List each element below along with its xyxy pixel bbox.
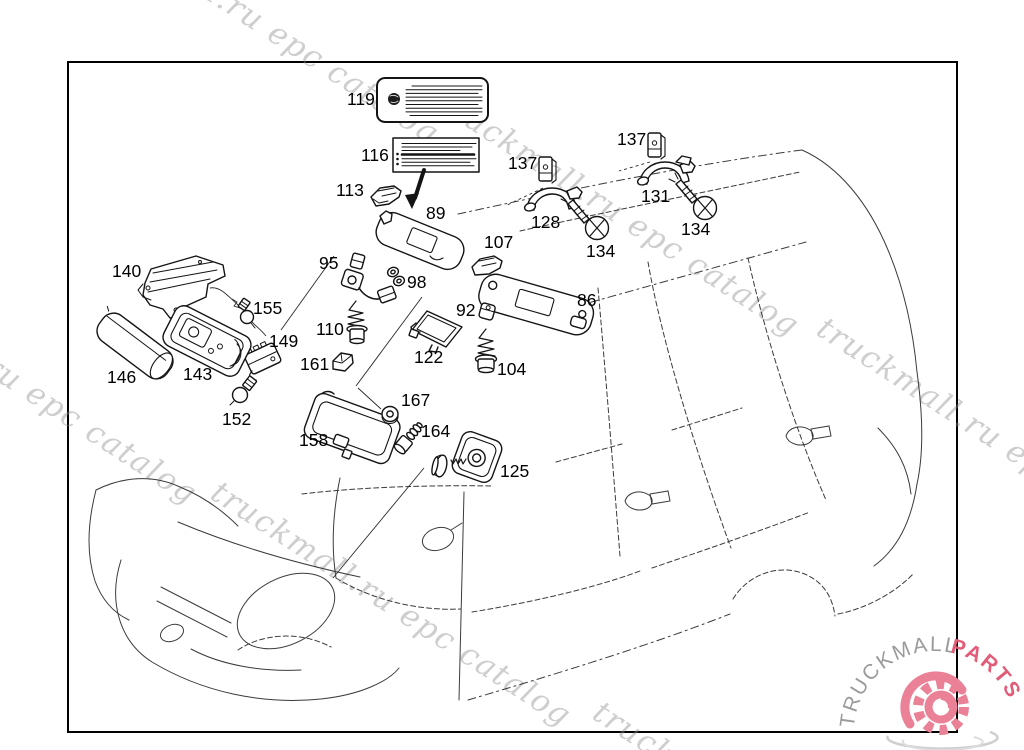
part-label-155: 155 <box>253 300 282 318</box>
part-label-131: 131 <box>641 188 670 206</box>
part-label-128: 128 <box>531 214 560 232</box>
part-label-113: 113 <box>336 182 364 200</box>
clip-161-part <box>333 353 353 371</box>
clip-137-left-part <box>539 157 556 183</box>
part-label-116: 116 <box>361 147 389 165</box>
leader-lines <box>210 162 650 578</box>
washer-167-part <box>382 407 398 424</box>
bearing-bracket-107-part <box>472 256 502 275</box>
part-label-164: 164 <box>421 423 450 441</box>
truckmall-parts-logo: TRUCKMALL PARTS <box>810 628 1024 750</box>
grab-handle-131-part <box>637 156 695 186</box>
part-label-104: 104 <box>497 361 526 379</box>
part-label-137-left: 137 <box>508 155 537 173</box>
front-door-handle <box>625 491 670 510</box>
data-plate-116-part <box>393 138 479 172</box>
part-label-110: 110 <box>316 321 344 339</box>
part-label-89: 89 <box>426 205 445 223</box>
clip-nut-92-part <box>478 302 495 320</box>
part-label-143: 143 <box>183 366 212 384</box>
grommets-98-part <box>386 266 405 287</box>
part-label-140: 140 <box>112 263 141 281</box>
data-plate-119-part <box>377 78 488 122</box>
screw-104-part <box>476 329 497 373</box>
part-label-98: 98 <box>407 274 426 292</box>
part-label-152: 152 <box>222 411 251 429</box>
part-label-146: 146 <box>107 369 136 387</box>
bulb-152-part <box>230 376 257 405</box>
part-label-158: 158 <box>299 432 328 450</box>
part-label-95: 95 <box>319 255 338 273</box>
rear-view-mirror-158-part <box>302 391 403 466</box>
part-label-134-left: 134 <box>586 243 615 261</box>
wiring-harness-95-part <box>341 253 397 304</box>
part-label-107: 107 <box>484 234 513 252</box>
part-label-149: 149 <box>269 333 298 351</box>
part-label-92: 92 <box>456 302 475 320</box>
part-label-167: 167 <box>401 392 430 410</box>
part-label-86: 86 <box>577 292 596 310</box>
screw-134-right-part <box>669 173 717 220</box>
bearing-bracket-113-part <box>371 186 401 206</box>
clip-137-right-part <box>648 133 665 159</box>
sun-visor-89-part <box>372 208 468 273</box>
part-label-122: 122 <box>414 349 443 367</box>
parts-catalog-page: truckmall.ru epc catalog truckmall.ru ep… <box>0 0 1024 750</box>
screw-110-part <box>347 301 367 344</box>
part-label-125: 125 <box>500 463 529 481</box>
rear-door-handle <box>786 426 831 445</box>
pointer-arrow <box>405 170 424 209</box>
part-label-161: 161 <box>300 356 329 374</box>
part-label-119: 119 <box>347 91 375 109</box>
vanity-mirror-122-part <box>409 311 462 352</box>
gear-icon <box>905 676 964 730</box>
part-label-137-right: 137 <box>617 131 646 149</box>
part-label-134-right: 134 <box>681 221 710 239</box>
